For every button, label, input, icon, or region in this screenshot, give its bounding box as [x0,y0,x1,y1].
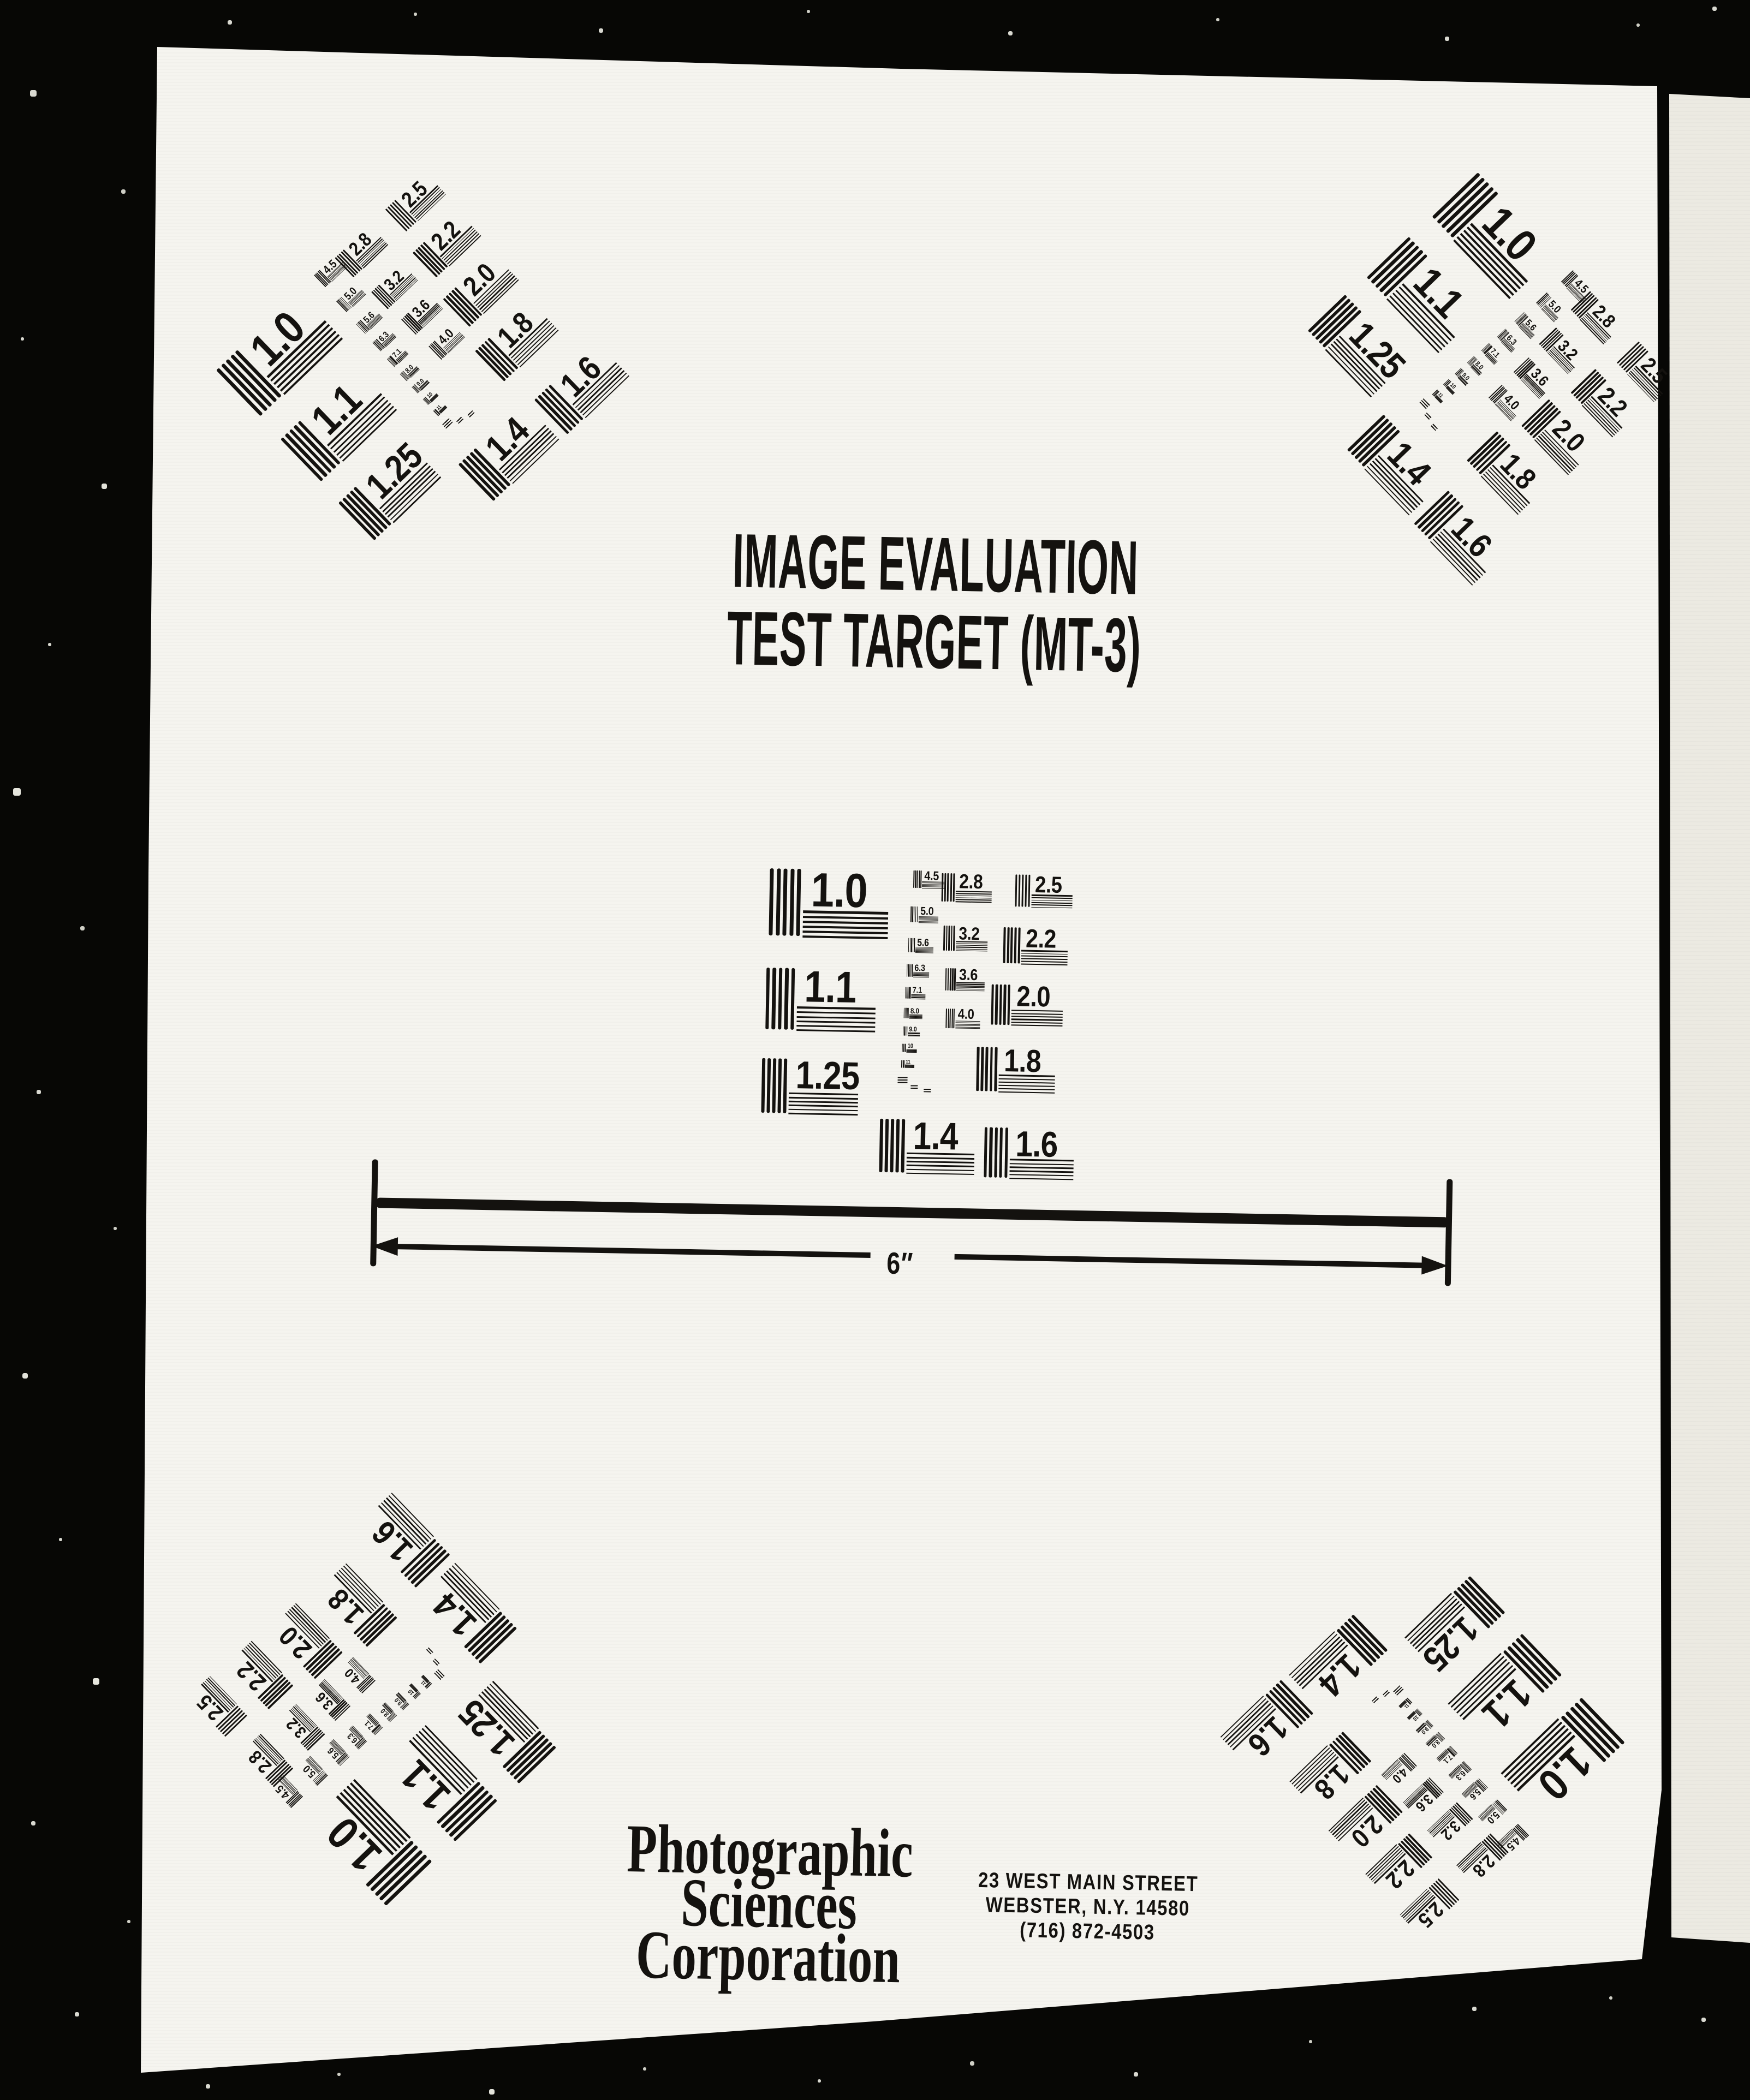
vertical-bars-icon [976,1047,997,1091]
resolution-number: 1.4 [913,1117,959,1156]
scale-bar-label: 6″ [886,1245,914,1281]
test-pattern-layer: 1.01.11.251.41.61.82.02.22.52.83.23.64.0… [19,0,1750,16]
vertical-bars-icon [991,985,1010,1025]
resolution-number: 1.0 [811,866,868,915]
resolution-number: 5.0 [920,906,934,917]
resolution-number: 4.5 [924,870,939,882]
resolution-number: 1.6 [1015,1125,1058,1162]
horizontal-bars-icon [789,1092,858,1115]
resolution-number: 2.2 [1026,926,1056,952]
horizontal-bars-icon [911,994,926,999]
horizontal-bars-icon [796,1006,875,1033]
resolution-number: 2.5 [1035,873,1062,897]
scale-bar-arrow-shaft-right [955,1254,1423,1268]
horizontal-bars-icon [1031,894,1072,908]
vertical-bars-icon [903,1027,907,1036]
resolution-number: 5.6 [917,938,929,948]
micro-resolution-mark [432,1658,439,1666]
company-address-block: 23 WEST MAIN STREET WEBSTER, N.Y. 14580 … [977,1868,1199,1946]
resolution-number: 1.1 [804,965,856,1011]
micro-resolution-mark [433,1669,444,1680]
micro-resolution-mark [924,1088,931,1092]
vertical-bars-icon [913,870,921,888]
vertical-bars-icon [769,868,801,936]
horizontal-bars-icon [1009,1159,1074,1180]
horizontal-bars-icon [955,1021,980,1029]
micro-resolution-mark [456,416,463,424]
micro-resolution-mark [897,1076,907,1083]
micro-resolution-mark [442,418,453,429]
horizontal-bars-icon [998,1075,1055,1094]
horizontal-bars-icon [906,1153,975,1176]
test-pattern-center: 1.01.11.251.41.61.82.02.22.52.83.23.64.0… [761,866,1084,1185]
address-line-3: (716) 872-4503 [977,1917,1198,1946]
resolution-number: 2.0 [1016,983,1050,1012]
horizontal-bars-icon [915,947,933,953]
scale-bar: 6″ [19,0,1750,16]
vertical-bars-icon [907,964,913,977]
horizontal-bars-icon [905,1065,914,1068]
address-line-2: WEBSTER, N.Y. 14580 [978,1893,1198,1921]
horizontal-bars-icon [913,972,930,977]
micro-resolution-mark [1393,1685,1404,1696]
resolution-number: 6.3 [915,964,926,973]
resolution-number: 4.0 [958,1008,974,1022]
test-pattern-bottom-right: 1.01.11.251.41.61.82.02.22.52.83.23.64.0… [1214,1532,1628,1947]
vertical-bars-icon [901,1060,904,1068]
horizontal-bars-icon [956,891,992,903]
horizontal-bars-icon [918,916,938,923]
horizontal-bars-icon [802,910,888,939]
micro-resolution-mark [910,1084,918,1089]
vertical-bars-icon [879,1119,904,1173]
resolution-number: 2.8 [959,872,983,893]
film-scan-canvas: IMAGE EVALUATION TEST TARGET (MT-3) 1.01… [0,0,1750,2100]
vertical-bars-icon [943,926,955,951]
horizontal-bars-icon [909,1015,922,1019]
vertical-bars-icon [984,1127,1008,1178]
micro-resolution-mark [1424,412,1432,420]
vertical-bars-icon [902,1044,906,1053]
company-line-3: Corporation [624,1928,912,1986]
micro-resolution-mark [1383,1690,1390,1698]
vertical-bars-icon [905,987,910,999]
resolution-number: 1.25 [795,1056,860,1096]
vertical-bars-icon [945,968,956,991]
resolution-number: 1.8 [1004,1045,1041,1077]
title-line-1: IMAGE EVALUATION [728,522,1143,607]
vertical-bars-icon [765,968,795,1030]
micro-resolution-mark [1419,398,1430,409]
horizontal-bars-icon [906,1049,917,1052]
vertical-bars-icon [945,1009,955,1028]
arrowhead-left-icon [372,1237,398,1256]
scale-bar-arrow-shaft-left [395,1244,871,1258]
resolution-number: 3.6 [959,967,978,983]
horizontal-bars-icon [956,982,985,991]
horizontal-bars-icon [922,881,944,889]
micro-resolution-mark [426,1648,433,1655]
micro-resolution-mark [1431,423,1438,431]
test-pattern-top-left: 1.01.11.251.41.61.82.02.22.52.83.23.64.0… [212,162,636,585]
vertical-bars-icon [1015,874,1030,907]
title-line-2: TEST TARGET (MT-3) [727,599,1142,684]
vertical-bars-icon [1003,927,1020,964]
test-pattern-top-right: 1.01.11.251.41.61.82.02.22.52.83.23.64.0… [1263,169,1687,592]
title-block: IMAGE EVALUATION TEST TARGET (MT-3) [727,522,1143,684]
micro-resolution-mark [467,410,474,417]
vertical-bars-icon [761,1058,787,1113]
test-pattern-bottom-left: 1.01.11.251.41.61.82.02.22.52.83.23.64.0… [177,1486,601,1910]
address-line-1: 23 WEST MAIN STREET [978,1868,1199,1896]
film-dust-specks [0,0,1,1]
scale-bar-rule [376,1197,1449,1227]
horizontal-bars-icon [956,941,987,951]
vertical-bars-icon [910,906,918,922]
page-content: IMAGE EVALUATION TEST TARGET (MT-3) 1.01… [0,0,1750,2100]
vertical-bars-icon [904,1008,909,1018]
horizontal-bars-icon [1021,950,1068,965]
arrowhead-right-icon [1421,1256,1448,1275]
horizontal-bars-icon [1011,1010,1063,1027]
micro-resolution-mark [1372,1696,1379,1704]
resolution-number: 3.2 [959,924,980,942]
vertical-bars-icon [908,938,915,952]
company-name-block: Photographic Sciences Corporation [624,1822,913,1986]
horizontal-bars-icon [908,1032,920,1036]
